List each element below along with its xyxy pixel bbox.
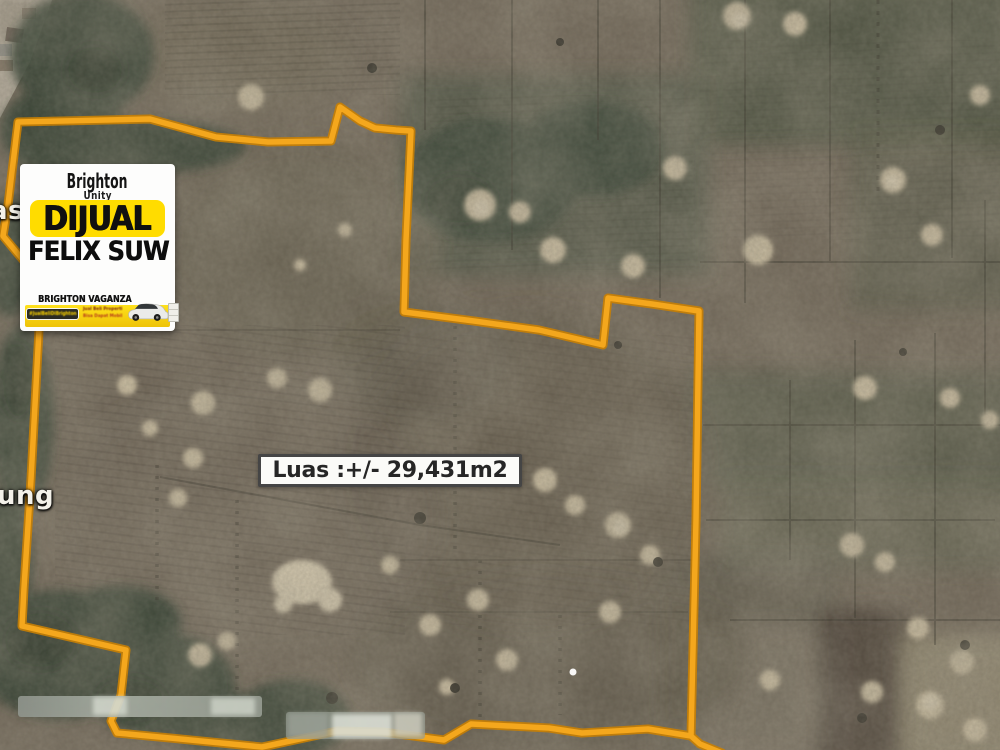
- car-icon: [125, 298, 168, 324]
- status-text: DIJUAL: [44, 199, 151, 239]
- prize-box-icon: [168, 303, 179, 322]
- blurred-watermark: [286, 712, 425, 739]
- promo-tagline-line1: Jual Beli Properti: [83, 307, 126, 314]
- agent-name-text: FELIX SUW: [28, 236, 169, 267]
- listing-sign-card: Brighton Unity DIJUAL FELIX SUW BRIGHTON…: [20, 164, 175, 331]
- area-label: Luas :+/- 29,431m2: [258, 454, 522, 487]
- noise-speckle-light: [0, 0, 1000, 750]
- promo-hashtag-badge: #JualBeliDiBrighton: [26, 308, 79, 320]
- agent-name: FELIX SUW: [20, 236, 175, 267]
- promo-hashtag-text: #JualBeliDiBrighton: [29, 311, 76, 317]
- status-badge: DIJUAL: [30, 200, 165, 237]
- satellite-map: [0, 0, 1000, 750]
- promo-banner: #JualBeliDiBrighton Jual Beli Properti B…: [25, 305, 170, 327]
- promo-tagline: Jual Beli Properti Bisa Dapat Mobil: [83, 307, 131, 325]
- property-listing-photo: asa ung Luas :+/- 29,431m2 Brighton Unit…: [0, 0, 1000, 750]
- place-label: ung: [0, 481, 54, 511]
- bright-dot: [570, 669, 577, 676]
- area-label-text: Luas :+/- 29,431m2: [272, 458, 507, 483]
- promo-title-text: BRIGHTON VAGANZA: [38, 294, 132, 305]
- promo-tagline-line2: Bisa Dapat Mobil: [83, 314, 126, 321]
- blurred-watermark: [18, 696, 262, 717]
